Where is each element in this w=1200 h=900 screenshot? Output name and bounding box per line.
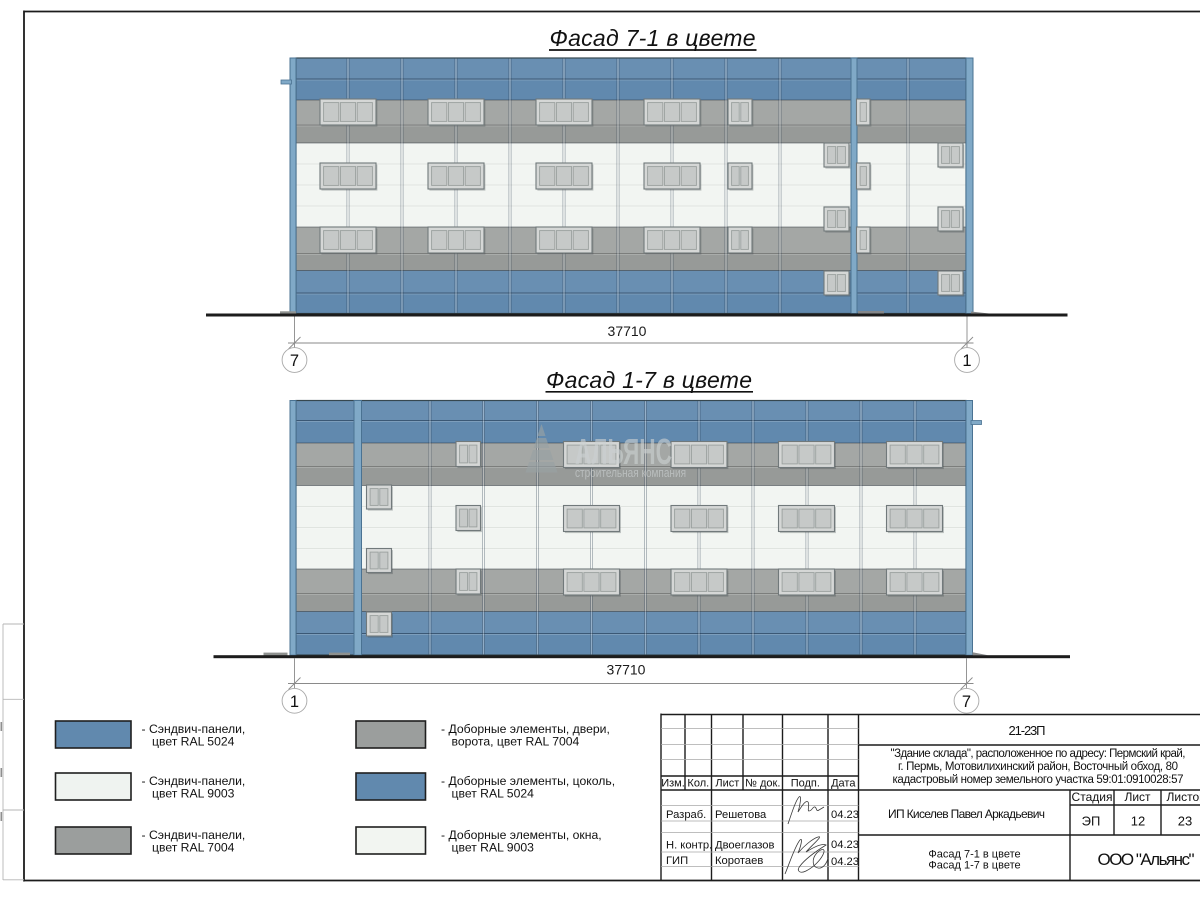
svg-text:Двоеглазов: Двоеглазов bbox=[715, 840, 775, 852]
svg-text:37710: 37710 bbox=[607, 662, 646, 678]
svg-text:37710: 37710 bbox=[608, 323, 647, 339]
svg-text:04.23: 04.23 bbox=[831, 856, 859, 868]
svg-text:цвет RAL 5024: цвет RAL 5024 bbox=[452, 787, 535, 801]
svg-text:цвет RAL 5024: цвет RAL 5024 bbox=[152, 735, 235, 749]
svg-text:Разраб.: Разраб. bbox=[666, 809, 706, 821]
svg-text:21-23П: 21-23П bbox=[1009, 723, 1046, 738]
svg-text:1: 1 bbox=[962, 352, 971, 370]
svg-text:ИП Киселев Павел Аркадьевич: ИП Киселев Павел Аркадьевич bbox=[888, 807, 1045, 821]
svg-text:Фасад 7-1 в цвете: Фасад 7-1 в цвете bbox=[550, 25, 756, 51]
svg-text:№ док.: № док. bbox=[745, 778, 780, 790]
svg-text:Подп.: Подп. bbox=[791, 778, 820, 790]
svg-text:Фасад 1-7 в цвете: Фасад 1-7 в цвете bbox=[546, 367, 752, 393]
svg-text:ООО "Альянс": ООО "Альянс" bbox=[1098, 850, 1195, 869]
svg-text:Стадия: Стадия bbox=[1072, 790, 1113, 804]
svg-text:7: 7 bbox=[290, 352, 299, 370]
svg-text:23: 23 bbox=[1178, 814, 1192, 829]
svg-text:строительная компания: строительная компания bbox=[575, 465, 686, 480]
svg-text:"Здание склада", расположенное: "Здание склада", расположенное по адресу… bbox=[891, 748, 1186, 760]
svg-text:Кол.: Кол. bbox=[687, 778, 709, 790]
svg-text:Коротаев: Коротаев bbox=[715, 855, 763, 867]
svg-text:Решетова: Решетова bbox=[715, 809, 767, 821]
svg-text:04.23: 04.23 bbox=[831, 809, 859, 821]
svg-text:12: 12 bbox=[1131, 814, 1145, 829]
svg-text:7: 7 bbox=[962, 693, 971, 711]
svg-text:Н. контр.: Н. контр. bbox=[666, 840, 712, 852]
svg-text:Лист: Лист bbox=[715, 778, 739, 790]
svg-text:04.23: 04.23 bbox=[831, 839, 859, 851]
svg-text:Изм.: Изм. bbox=[661, 778, 685, 790]
svg-text:ГИП: ГИП bbox=[666, 855, 688, 867]
svg-text:цвет RAL 9003: цвет RAL 9003 bbox=[152, 787, 235, 801]
svg-text:кадастровый номер земельного у: кадастровый номер земельного участка 59:… bbox=[893, 774, 1184, 786]
svg-text:Листов: Листов bbox=[1167, 790, 1200, 804]
svg-text:ЭП: ЭП bbox=[1082, 814, 1101, 829]
svg-text:Дата: Дата bbox=[831, 778, 856, 790]
svg-text:цвет RAL 7004: цвет RAL 7004 bbox=[152, 841, 235, 855]
svg-text:г. Пермь, Мотовилихинский райо: г. Пермь, Мотовилихинский район, Восточн… bbox=[898, 761, 1178, 773]
svg-text:цвет RAL 9003: цвет RAL 9003 bbox=[452, 841, 535, 855]
svg-text:ворота, цвет RAL 7004: ворота, цвет RAL 7004 bbox=[452, 735, 580, 749]
svg-text:Лист: Лист bbox=[1124, 790, 1151, 804]
svg-text:Фасад 1-7 в цвете: Фасад 1-7 в цвете bbox=[928, 860, 1020, 872]
svg-text:1: 1 bbox=[290, 693, 299, 711]
